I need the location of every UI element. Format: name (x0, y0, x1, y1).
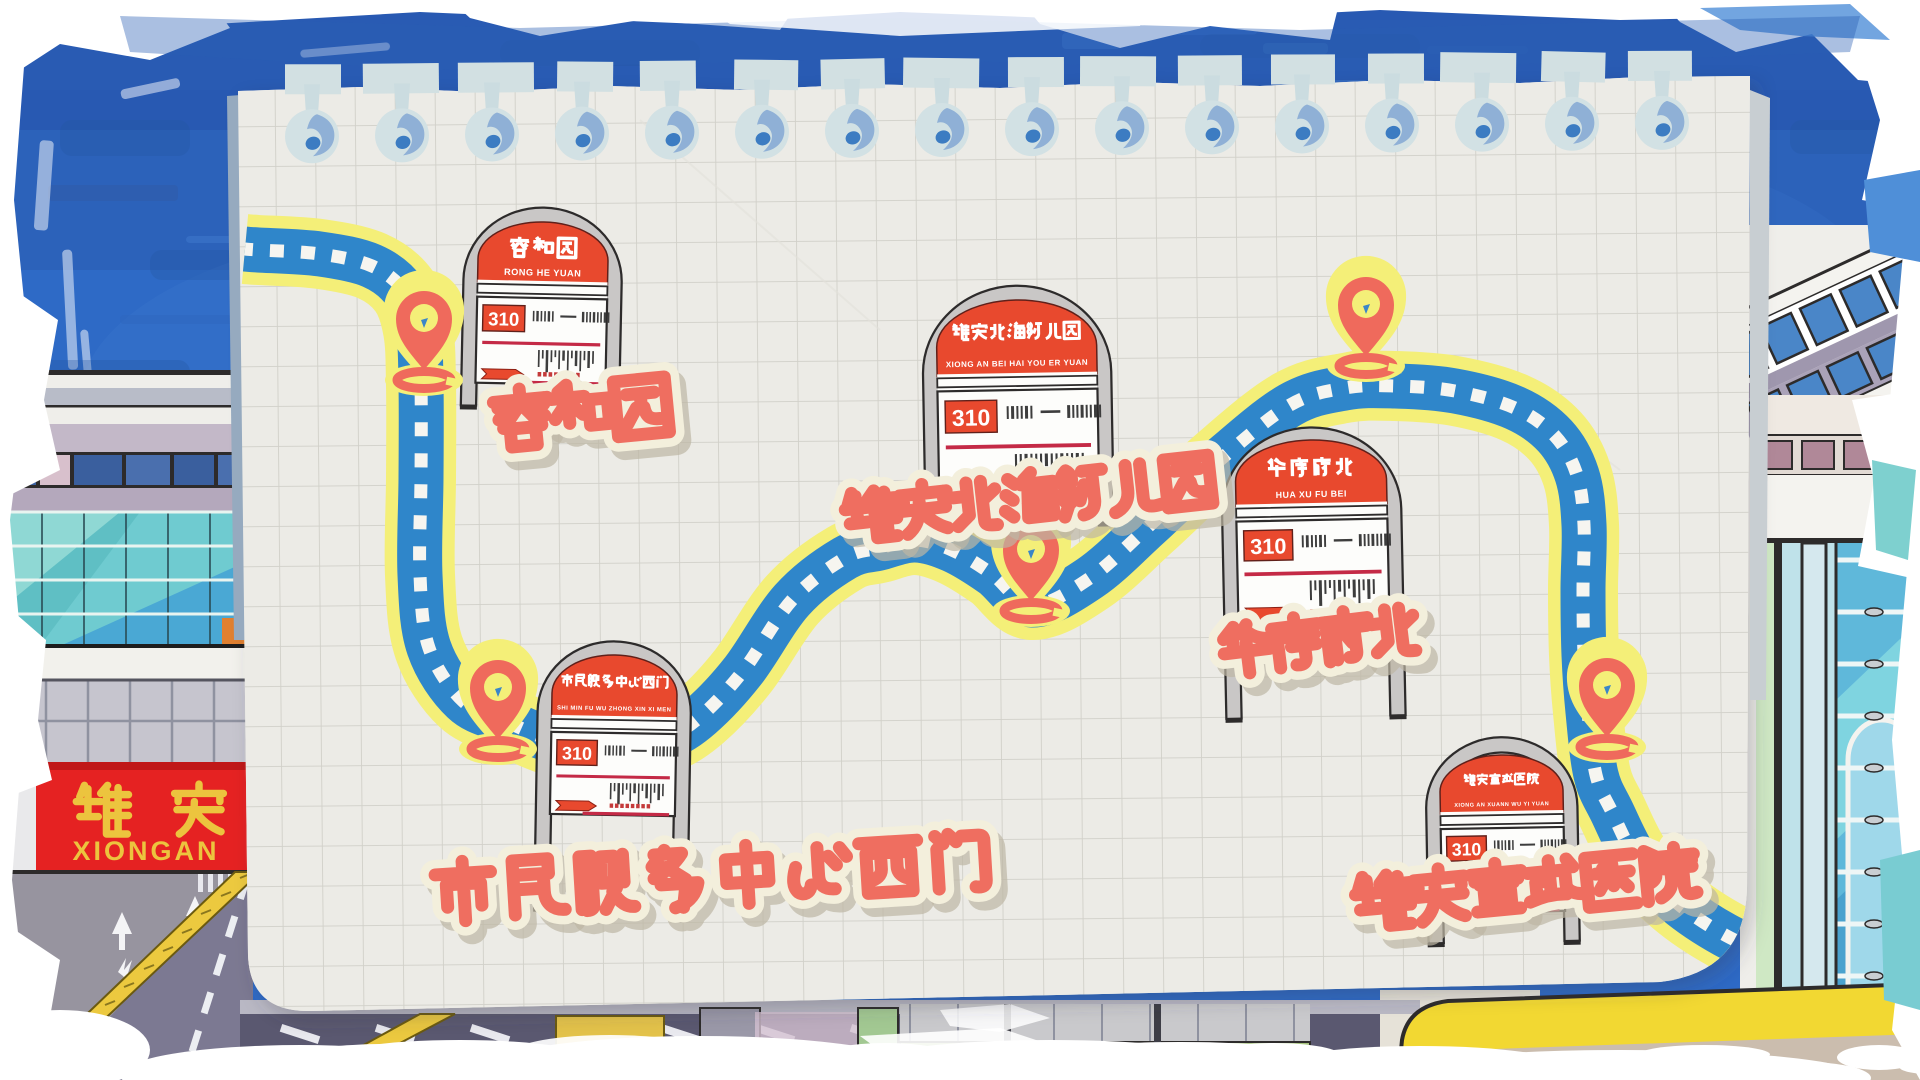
svg-text:310: 310 (952, 404, 991, 431)
svg-text:RONG HE YUAN: RONG HE YUAN (504, 267, 582, 279)
svg-text:310: 310 (562, 743, 592, 764)
svg-text:XIONGAN: XIONGAN (72, 836, 219, 866)
svg-text:310: 310 (488, 308, 520, 330)
svg-text:HUA XU FU BEI: HUA XU FU BEI (1276, 488, 1347, 499)
svg-text:310: 310 (1250, 533, 1287, 559)
svg-text:310: 310 (1452, 839, 1482, 860)
